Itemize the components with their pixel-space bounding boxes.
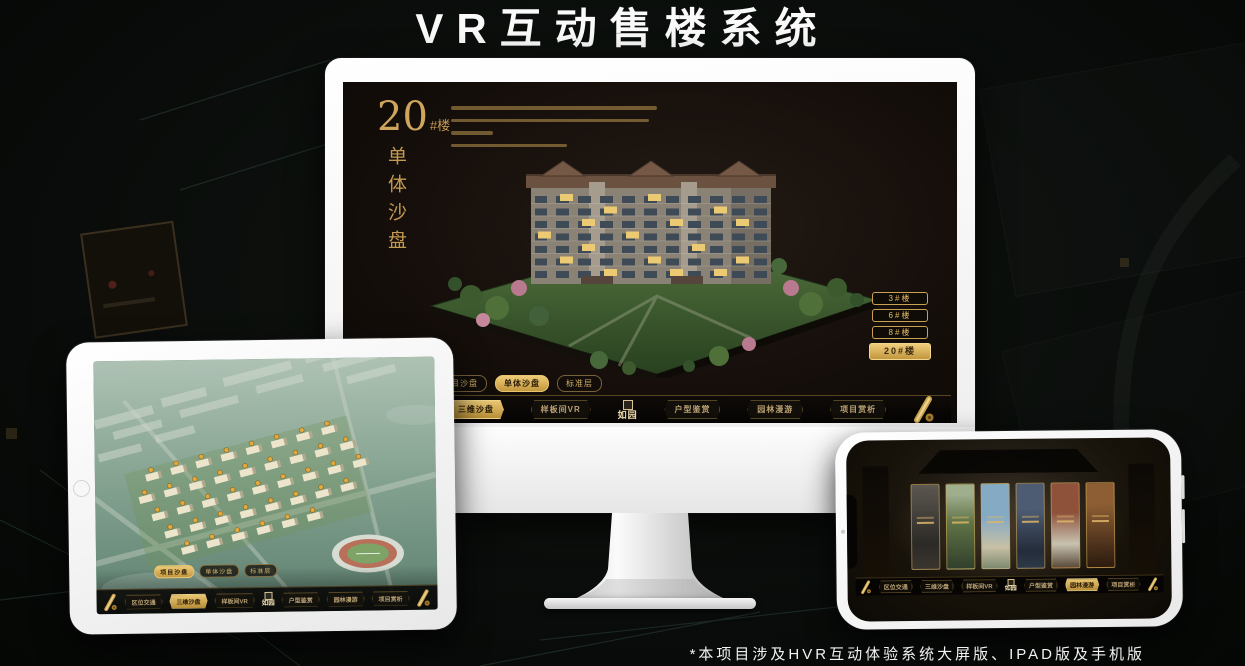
gallery-card[interactable] [1086,482,1116,568]
subtab-single-model[interactable]: 单体沙盘 [199,564,239,578]
brand-logo-text: 如园 [618,411,638,420]
phone-bottom-navbar: 区位交通 三维沙盘 样板间VR 如园 户型鉴赏 园林漫游 项目赏析 [855,574,1163,595]
gallery-card[interactable] [911,484,941,570]
nav-item-sandtable[interactable]: 三维沙盘 [169,593,207,609]
building-block [526,161,776,284]
subtab-single-model[interactable]: 单体沙盘 [495,375,549,392]
subtab-project-model[interactable]: 项目沙盘 [154,565,194,579]
nav-item-sandtable[interactable]: 三维沙盘 [448,400,504,419]
scroll-icon[interactable] [1147,576,1158,591]
brand-logo-text: 如园 [1005,586,1017,592]
nav-item-project-view[interactable]: 项目赏析 [830,400,886,419]
tablet-screen[interactable]: 项目沙盘 单体沙盘 标准层 区位交通 三维沙盘 样板间VR 如园 户型鉴赏 园林… [93,357,437,615]
scroll-icon[interactable] [913,395,935,423]
building-number: 20 [377,94,428,140]
pillar-silhouette [1128,463,1155,581]
nav-item-garden-tour[interactable]: 园林漫游 [326,591,364,607]
monitor-stand-base [544,598,756,609]
poster: VR互动售楼系统 20#楼 单体沙盘 [0,0,1245,666]
nav-item-location[interactable]: 区位交通 [124,594,162,610]
nav-item-garden-tour[interactable]: 园林漫游 [1065,578,1099,591]
building-number-suffix: #楼 [430,118,450,133]
subtab-standard-floor[interactable]: 标准层 [244,564,277,577]
floor-button-8[interactable]: 8#楼 [872,326,928,339]
building-3d-render [419,138,889,378]
nav-item-project-view[interactable]: 项目赏析 [1106,578,1140,591]
nav-item-showroom-vr[interactable]: 样板间VR [961,579,997,592]
phone-notch [847,494,858,568]
home-button[interactable] [73,480,90,497]
brand-logo-text: 如园 [262,601,275,608]
nav-item-floorplan[interactable]: 户型鉴赏 [664,400,720,419]
brand-logo: 如园 [262,592,275,608]
gallery-card-strip [911,482,1116,570]
building-heading: 20#楼 [377,94,450,140]
phone-mockup: 区位交通 三维沙盘 样板间VR 如园 户型鉴赏 园林漫游 项目赏析 [835,429,1183,630]
pavilion-roof-silhouette [918,442,1098,474]
subtab-standard-floor[interactable]: 标准层 [557,375,602,392]
nav-item-garden-tour[interactable]: 园林漫游 [747,400,803,419]
gallery-card[interactable] [946,483,976,569]
tablet-mockup: 项目沙盘 单体沙盘 标准层 区位交通 三维沙盘 样板间VR 如园 户型鉴赏 园林… [66,337,457,634]
nav-item-showroom-vr[interactable]: 样板间VR [531,400,591,419]
seal-icon [623,400,633,410]
brand-logo: 如园 [1005,579,1017,592]
floor-button-6[interactable]: 6#楼 [872,309,928,322]
side-button[interactable] [1181,475,1184,499]
gallery-card[interactable] [1016,483,1046,569]
gallery-card[interactable] [1051,482,1081,568]
subtab-group: 项目沙盘 单体沙盘 标准层 [433,375,602,392]
pillar-silhouette [862,466,889,584]
tablet-subtab-group: 项目沙盘 单体沙盘 标准层 [154,564,277,579]
nav-item-location[interactable]: 区位交通 [879,580,913,593]
tablet-bottom-navbar: 区位交通 三维沙盘 样板间VR 如园 户型鉴赏 园林漫游 项目赏析 [96,585,437,615]
floor-button-3[interactable]: 3#楼 [872,292,928,305]
gallery-card[interactable] [981,483,1011,569]
nav-item-showroom-vr[interactable]: 样板间VR [214,593,255,609]
brand-logo: 如园 [618,400,638,420]
nav-item-project-view[interactable]: 项目赏析 [371,590,409,606]
scroll-icon[interactable] [861,579,872,594]
nav-item-sandtable[interactable]: 三维沙盘 [920,580,954,593]
section-title-vertical: 单体沙盘 [383,146,410,258]
footnote: *本项目涉及HVR互动体验系统大屏版、IPAD版及手机版 [690,643,1145,664]
side-button[interactable] [1182,509,1185,543]
camera-dot [841,529,845,533]
monitor-stand-neck [550,513,750,605]
floor-button-group: 3#楼 6#楼 8#楼 20#楼 [869,292,931,360]
nav-item-floorplan[interactable]: 户型鉴赏 [282,592,320,608]
nav-item-floorplan[interactable]: 户型鉴赏 [1024,578,1058,591]
page-title: VR互动售楼系统 [0,0,1245,57]
phone-screen[interactable]: 区位交通 三维沙盘 样板间VR 如园 户型鉴赏 园林漫游 项目赏析 [846,437,1172,621]
scroll-icon[interactable] [416,589,430,607]
scroll-icon[interactable] [103,593,117,611]
floor-button-20[interactable]: 20#楼 [869,343,931,360]
